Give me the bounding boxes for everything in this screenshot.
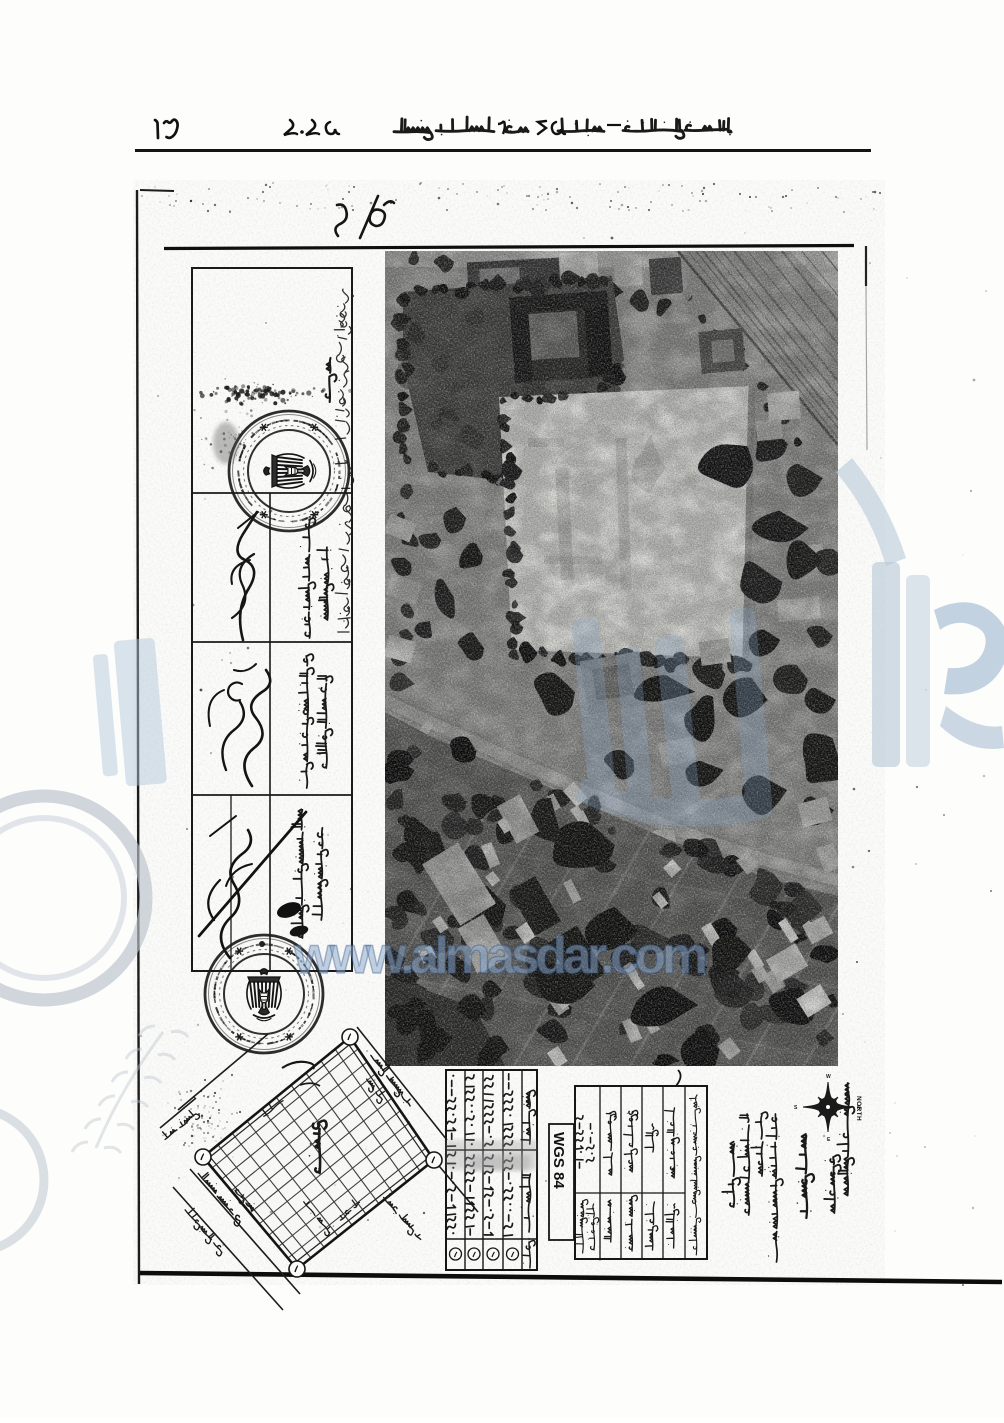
svg-text:W: W [826, 1074, 831, 1080]
svg-text:NORTH: NORTH [855, 1096, 862, 1121]
svg-text:www.almasdar.com: www.almasdar.com [293, 927, 708, 985]
svg-text:WGS 84: WGS 84 [550, 1132, 567, 1189]
